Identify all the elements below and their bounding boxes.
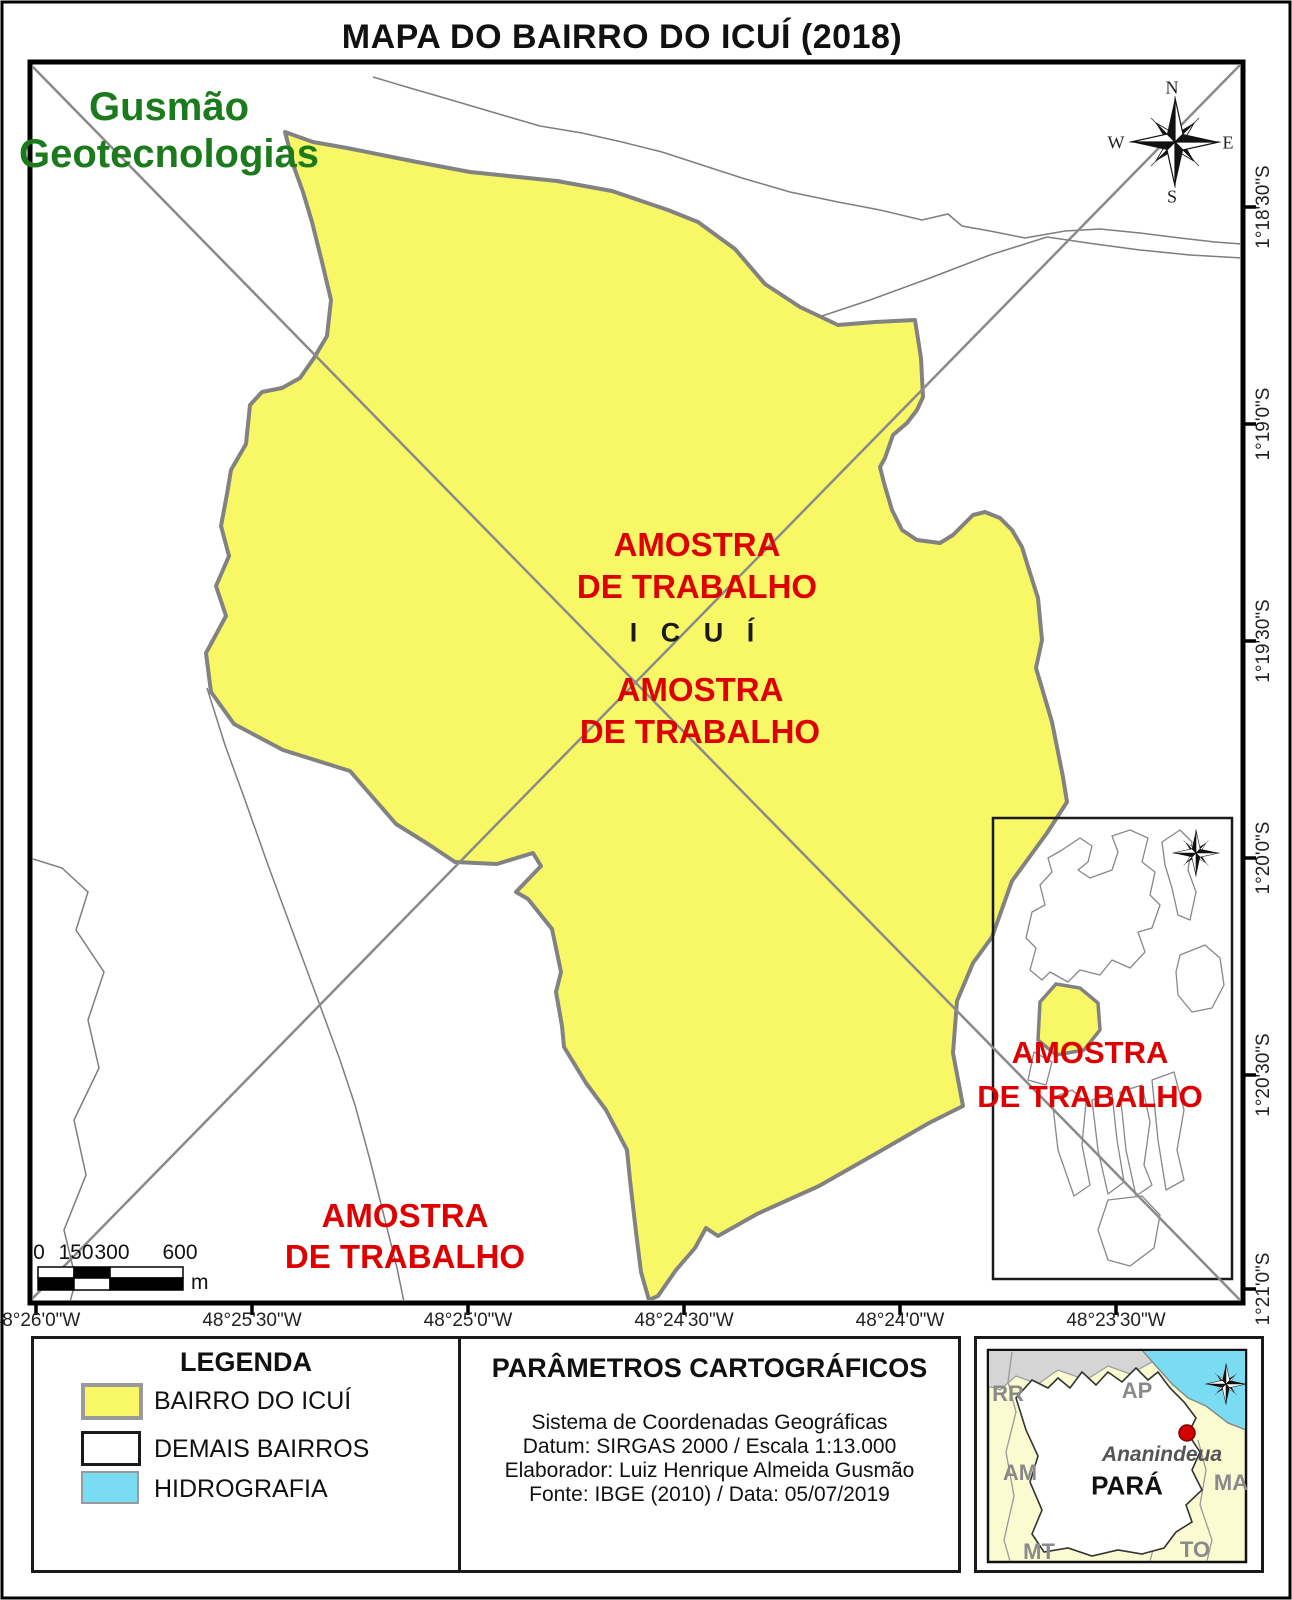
compass-s-label: S (1167, 187, 1177, 208)
state-label-rr: RR (992, 1381, 1024, 1407)
brand-line1: Gusmão (14, 84, 324, 131)
params-line: Fonte: IBGE (2010) / Data: 05/07/2019 (461, 1483, 958, 1507)
sample-watermark: AMOSTRA DE TRABALHO (930, 1031, 1250, 1119)
cartographic-params-panel: PARÂMETROS CARTOGRÁFICOS Sistema de Coor… (458, 1336, 961, 1573)
legend-panel: LEGENDA BAIRRO DO ICUÍ DEMAIS BAIRROS HI… (31, 1336, 461, 1573)
lat-tick-label: 1°20'0"S (1253, 822, 1275, 895)
legend-item-label: BAIRRO DO ICUÍ (154, 1386, 351, 1417)
scale-tick-label: 150 (58, 1241, 93, 1265)
legend-title: LEGENDA (34, 1347, 458, 1378)
sample-watermark: AMOSTRA DE TRABALHO (537, 524, 857, 608)
state-label-to: TO (1180, 1537, 1210, 1563)
state-label-mt: MT (1023, 1539, 1055, 1565)
state-label-am: AM (1003, 1460, 1037, 1486)
compass-e-label: E (1223, 133, 1234, 154)
scale-unit-label: m (191, 1271, 209, 1295)
lon-tick-label: 48°24'0"W (856, 1310, 945, 1332)
brand-line2: Geotecnologias (14, 131, 324, 178)
lon-tick-label: 48°23'30"W (1066, 1310, 1165, 1332)
lon-tick-label: 48°25'0"W (424, 1310, 513, 1332)
lat-tick-label: 1°20'30"S (1253, 1033, 1275, 1116)
legend-item-label: DEMAIS BAIRROS (154, 1434, 369, 1465)
compass-w-label: W (1108, 133, 1125, 154)
legend-swatch-demais (81, 1431, 141, 1466)
city-label-ananindeua: Ananindeua (1102, 1443, 1222, 1467)
compass-rose-icon (1127, 94, 1223, 190)
state-label-ma: MA (1214, 1470, 1248, 1496)
legend-item-label: HIDROGRAFIA (154, 1474, 328, 1505)
lat-tick-label: 1°19'0"S (1253, 388, 1275, 461)
params-line: Elaborador: Luiz Henrique Almeida Gusmão (461, 1459, 958, 1483)
sample-watermark: AMOSTRA DE TRABALHO (245, 1195, 565, 1277)
page-title: MAPA DO BAIRRO DO ICUÍ (2018) (22, 18, 1222, 57)
lat-tick-label: 1°21'0"S (1253, 1253, 1275, 1326)
scale-tick-label: 300 (94, 1241, 129, 1265)
sample-watermark: AMOSTRA DE TRABALHO (540, 669, 860, 753)
params-line: Sistema de Coordenadas Geográficas (461, 1411, 958, 1435)
lon-tick-label: 48°24'30"W (634, 1310, 733, 1332)
lon-tick-label: 48°25'30"W (202, 1310, 301, 1332)
legend-swatch-bairro (81, 1383, 143, 1420)
legend-swatch-hidrografia (81, 1471, 139, 1504)
lat-tick-label: 1°18'30"S (1253, 165, 1275, 248)
state-label-para: PARÁ (1091, 1471, 1163, 1502)
lat-tick-label: 1°19'30"S (1253, 599, 1275, 682)
params-title: PARÂMETROS CARTOGRÁFICOS (461, 1353, 958, 1384)
map-sheet: MAPA DO BAIRRO DO ICUÍ (2018) Gusmão Geo… (0, 0, 1292, 1600)
lon-tick-label: 48°26'0"W (0, 1310, 80, 1332)
params-line: Datum: SIRGAS 2000 / Escala 1:13.000 (461, 1435, 958, 1459)
state-label-ap: AP (1122, 1378, 1153, 1404)
brand-watermark: Gusmão Geotecnologias (14, 84, 324, 178)
compass-n-label: N (1166, 78, 1179, 99)
neighborhood-label: I C U Í (630, 618, 763, 649)
scale-bar (38, 1267, 183, 1290)
scale-tick-label: 600 (162, 1241, 197, 1265)
scale-tick-label: 0 (33, 1241, 45, 1265)
